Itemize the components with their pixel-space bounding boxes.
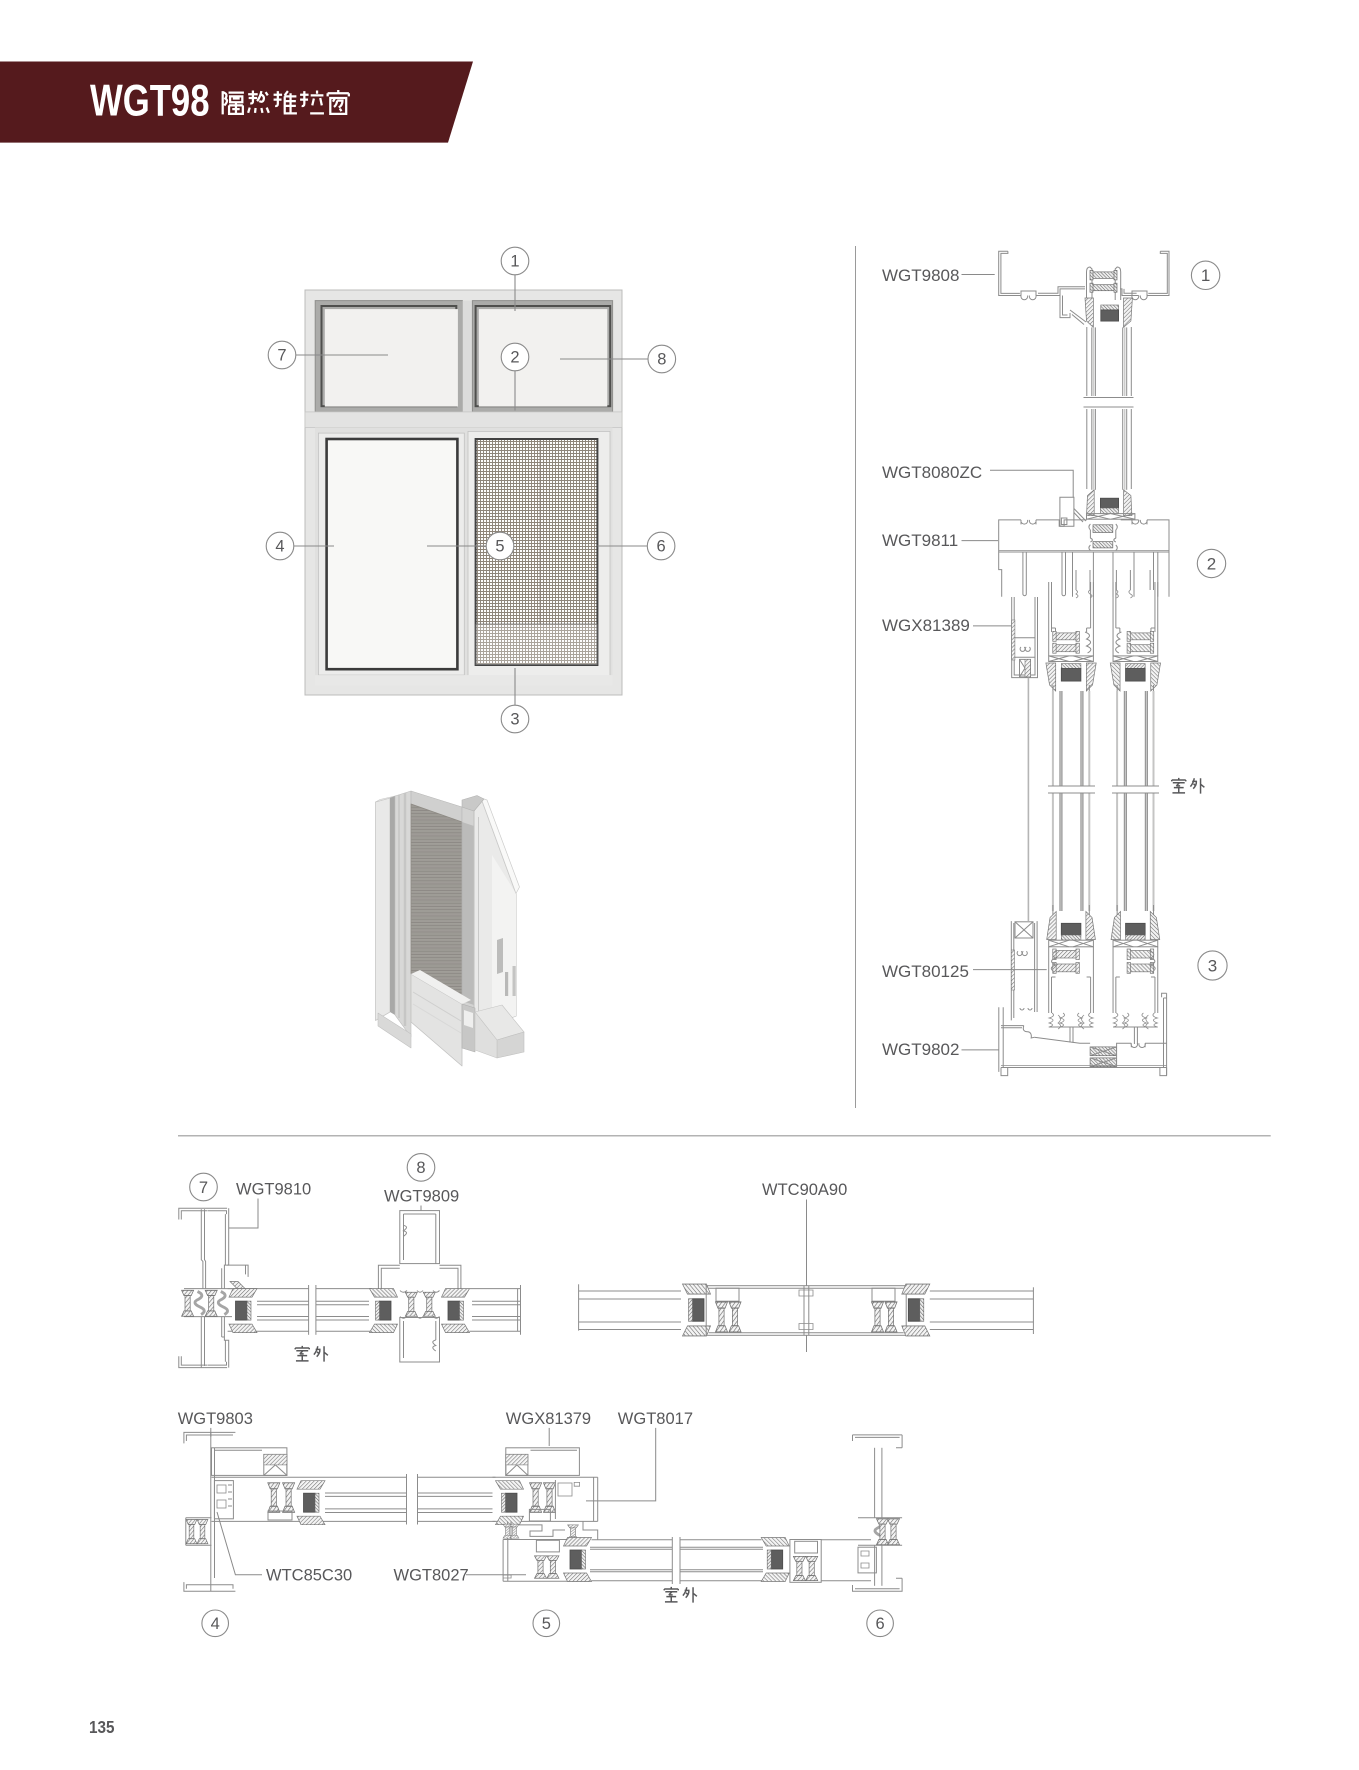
svg-text:WGX81379: WGX81379 bbox=[506, 1410, 591, 1428]
svg-text:6: 6 bbox=[876, 1615, 885, 1633]
svg-text:WGT9802: WGT9802 bbox=[882, 1040, 959, 1059]
svg-text:WGT8080ZC: WGT8080ZC bbox=[882, 463, 982, 482]
svg-text:WGT9811: WGT9811 bbox=[882, 531, 958, 550]
svg-text:6: 6 bbox=[657, 538, 666, 556]
svg-text:7: 7 bbox=[199, 1179, 208, 1197]
svg-text:WGT9809: WGT9809 bbox=[384, 1187, 459, 1205]
svg-text:3: 3 bbox=[510, 711, 519, 729]
svg-text:WGT98: WGT98 bbox=[90, 76, 210, 125]
svg-text:5: 5 bbox=[542, 1615, 551, 1633]
svg-text:WGT8017: WGT8017 bbox=[618, 1410, 693, 1428]
svg-text:2: 2 bbox=[1207, 554, 1216, 573]
svg-text:WGX81389: WGX81389 bbox=[882, 616, 970, 635]
svg-text:1: 1 bbox=[1201, 266, 1210, 285]
svg-text:WGT9810: WGT9810 bbox=[236, 1181, 311, 1199]
svg-text:8: 8 bbox=[416, 1159, 425, 1177]
svg-text:WGT9808: WGT9808 bbox=[882, 266, 959, 285]
svg-text:8: 8 bbox=[657, 351, 666, 369]
svg-text:1: 1 bbox=[510, 253, 519, 271]
svg-text:WGT8027: WGT8027 bbox=[394, 1566, 469, 1584]
svg-text:4: 4 bbox=[275, 538, 284, 556]
svg-text:2: 2 bbox=[510, 349, 519, 367]
svg-text:WTC85C30: WTC85C30 bbox=[266, 1566, 352, 1584]
svg-text:WGT80125: WGT80125 bbox=[882, 962, 969, 981]
svg-text:3: 3 bbox=[1208, 956, 1217, 975]
svg-text:4: 4 bbox=[211, 1615, 220, 1633]
svg-text:7: 7 bbox=[277, 347, 286, 365]
svg-text:WTC90A90: WTC90A90 bbox=[762, 1181, 847, 1199]
svg-text:WGT9803: WGT9803 bbox=[178, 1410, 253, 1428]
svg-text:135: 135 bbox=[89, 1717, 115, 1737]
svg-text:5: 5 bbox=[495, 538, 504, 556]
